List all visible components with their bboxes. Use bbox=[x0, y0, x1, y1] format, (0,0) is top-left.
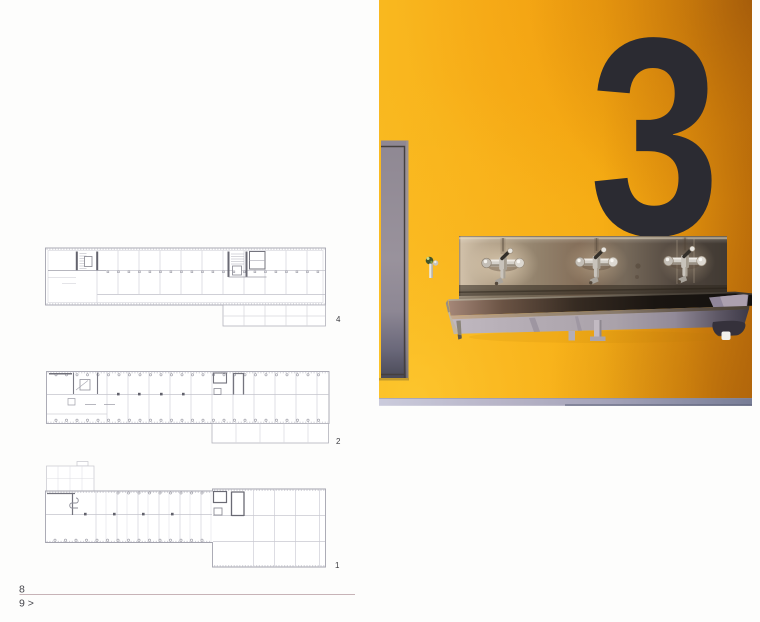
svg-text:9 >: 9 > bbox=[19, 598, 34, 610]
svg-text:2: 2 bbox=[336, 437, 341, 446]
svg-text:1: 1 bbox=[335, 561, 340, 570]
svg-text:8: 8 bbox=[19, 584, 25, 596]
svg-text:4: 4 bbox=[336, 315, 341, 324]
